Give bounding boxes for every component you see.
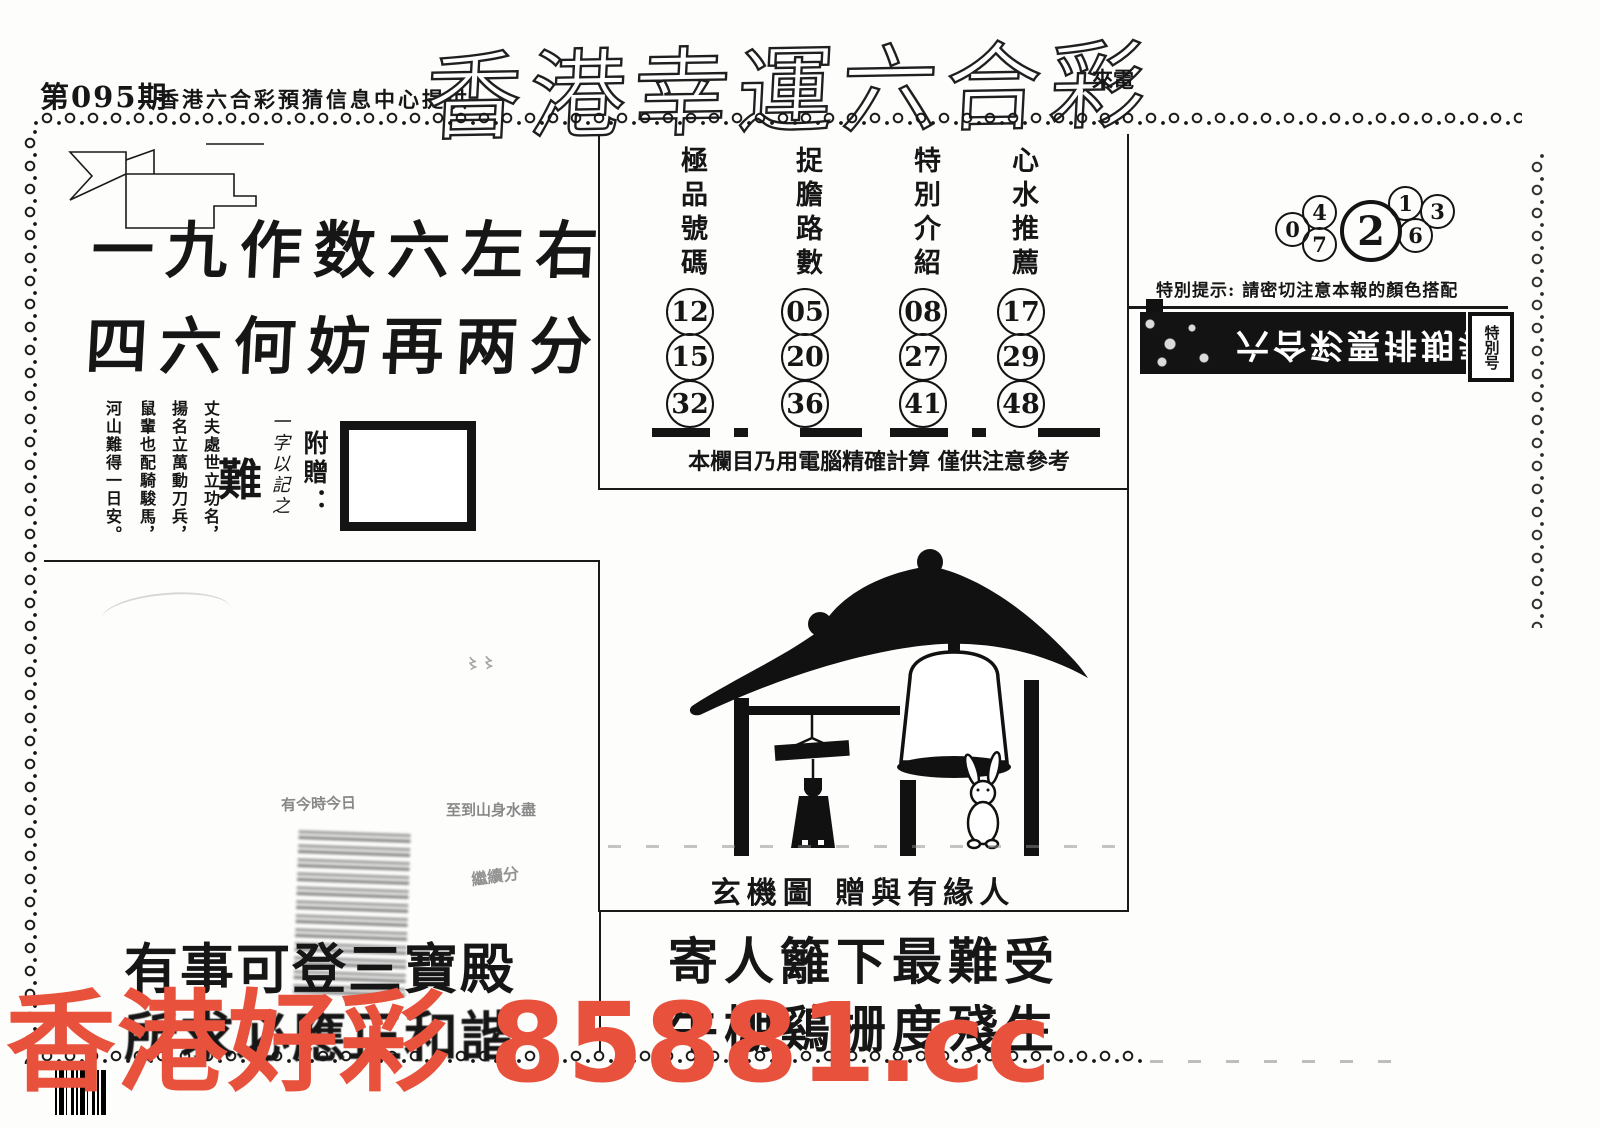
banner-corner-mark <box>1146 299 1163 312</box>
tip-number-circle: 20 <box>781 333 829 381</box>
border-ornament-left <box>24 126 39 1064</box>
tip-number-circle: 08 <box>899 288 947 336</box>
monk-figure <box>791 778 835 848</box>
tip-number-circle: 12 <box>666 288 714 336</box>
gift-blank-box <box>340 421 476 531</box>
poem-column-4: 河山難得一日安。 <box>100 400 124 555</box>
poem-column-2: 揚名立萬動刀兵， <box>166 400 190 555</box>
erased-bar <box>652 428 1104 437</box>
special-number-top-left: 4 <box>1302 195 1337 230</box>
tip-number-circle: 32 <box>666 380 714 428</box>
issue-number: 第095期 <box>40 74 169 116</box>
bell-pavilion-illustration <box>672 530 1102 860</box>
smudge-fragment-1: 有今時今日 <box>281 792 357 816</box>
tip-number-circle: 17 <box>997 288 1045 336</box>
special-number-far-right: 3 <box>1420 194 1455 229</box>
tip-column-header-4: 心水推薦 <box>1003 146 1042 282</box>
tip-number-circle: 41 <box>899 380 947 428</box>
masthead-title: 香港幸運六合彩 <box>422 8 1157 160</box>
site-watermark: 香港好彩 85881.cc <box>6 988 1052 1098</box>
smudged-print-area: 〻〻 有今時今日 至到山身水盡 繼續分 <box>46 575 598 915</box>
tip-number-circle: 27 <box>899 333 947 381</box>
schedule-banner: 六合彩票排期表 <box>1140 312 1466 374</box>
lottery-tip-sheet: 第095期 香港六合彩預猜信息中心提供 香港幸運六合彩 來電 一九作数六左右 四… <box>0 0 1600 1129</box>
gift-note: 一字以記之 <box>266 412 292 527</box>
main-verse-line-1: 一九作数六左右 <box>90 200 613 290</box>
poem-column-3: 鼠輩也配騎駿馬， <box>134 400 158 555</box>
smudge-fragment-3: 繼續分 <box>470 860 521 890</box>
masthead-note: 來電 <box>1092 64 1134 94</box>
banner-side-label: 特別号 <box>1484 325 1499 370</box>
special-notice: 特別提示: 請密切注意本報的顏色搭配 <box>1156 276 1458 301</box>
gift-label: 附贈： <box>296 430 332 525</box>
tip-column-header-1: 極品號碼 <box>672 146 711 282</box>
divider-right-of-smudge <box>598 560 600 912</box>
border-ornament-top <box>30 112 1522 127</box>
special-number-bottom-left: 7 <box>1302 227 1337 262</box>
divider-under-gift-section <box>44 560 600 562</box>
tip-number-circle: 05 <box>781 288 829 336</box>
gift-character: 難 <box>218 444 262 508</box>
tips-footnote: 本欄目乃用電腦精確計算 僅供注意參考 <box>648 444 1110 476</box>
divider-right-of-center <box>1127 134 1129 912</box>
tip-number-circle: 15 <box>666 333 714 381</box>
banner-side-box: 特別号 <box>1468 312 1514 382</box>
tip-number-circle: 36 <box>781 380 829 428</box>
tip-column-header-3: 特別介紹 <box>905 146 944 282</box>
tip-column-header-2: 捉膽路數 <box>787 146 826 282</box>
divider-under-tips <box>598 488 1129 490</box>
divider-under-special-box <box>1128 306 1508 309</box>
tip-number-circle: 48 <box>997 380 1045 428</box>
faint-dashes-above-caption <box>608 845 1123 848</box>
banner-mirrored-title: 六合彩票排期表 <box>1236 324 1495 372</box>
smudge-fragment-extra: 〻〻 <box>465 652 498 674</box>
main-verse-line-2: 四六何妨再两分 <box>84 296 607 386</box>
tip-number-circle: 29 <box>997 333 1045 381</box>
mystic-caption: 玄機圖 贈與有緣人 <box>598 868 1128 912</box>
banner-splotch-pattern <box>1142 314 1234 372</box>
border-dashes-bottom-right <box>1150 1060 1400 1063</box>
smudge-arc <box>99 587 232 640</box>
special-number-top-right: 1 <box>1388 186 1423 221</box>
provider-text: 香港六合彩預猜信息中心提供 <box>158 84 470 114</box>
striker-log <box>776 715 849 782</box>
border-ornament-right <box>1531 150 1546 628</box>
smudge-fragment-2: 至到山身水盡 <box>446 799 536 820</box>
